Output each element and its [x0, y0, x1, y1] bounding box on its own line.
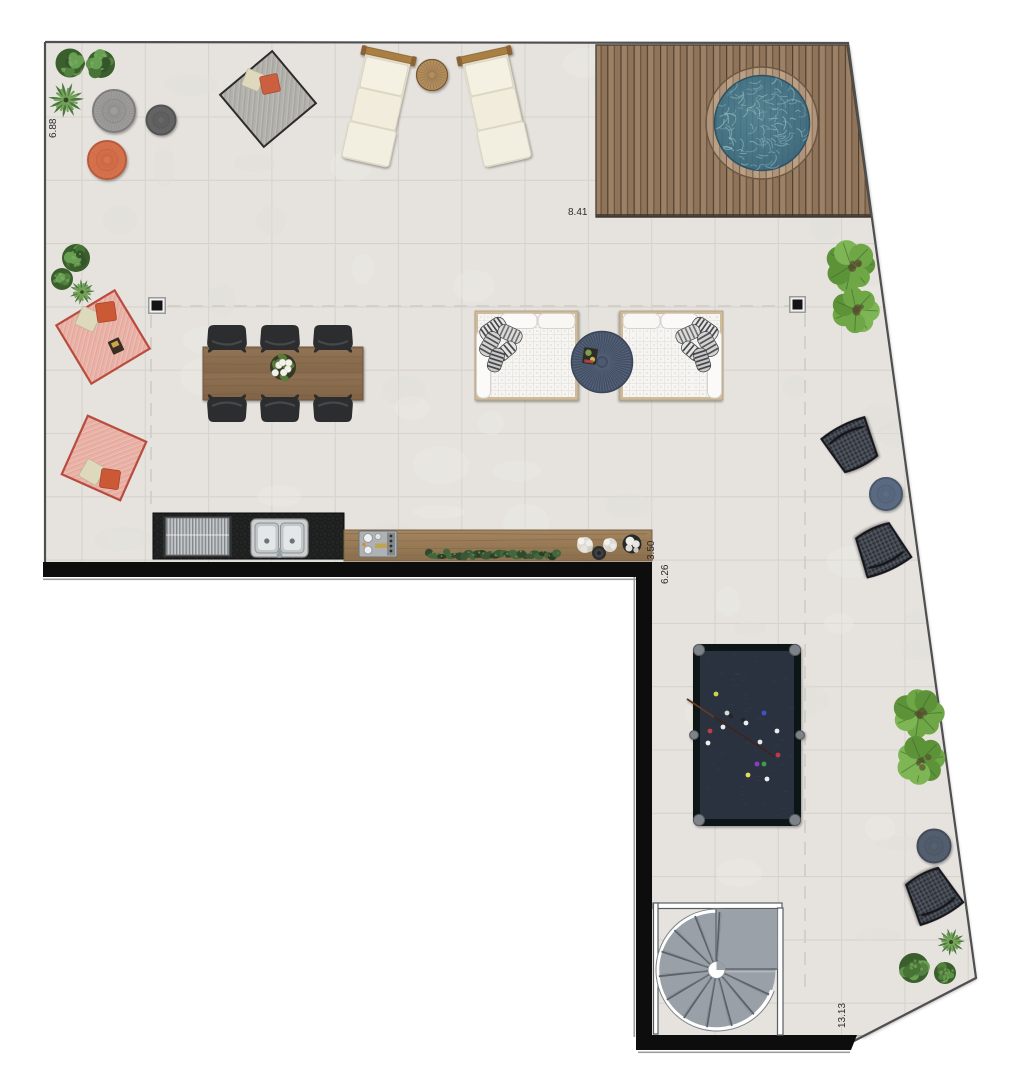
svg-text:6.26: 6.26	[660, 564, 671, 584]
svg-text:8.41: 8.41	[568, 207, 588, 218]
svg-text:13.13: 13.13	[837, 1003, 848, 1028]
svg-text:6.88: 6.88	[48, 118, 59, 138]
svg-text:3.50: 3.50	[646, 540, 657, 560]
